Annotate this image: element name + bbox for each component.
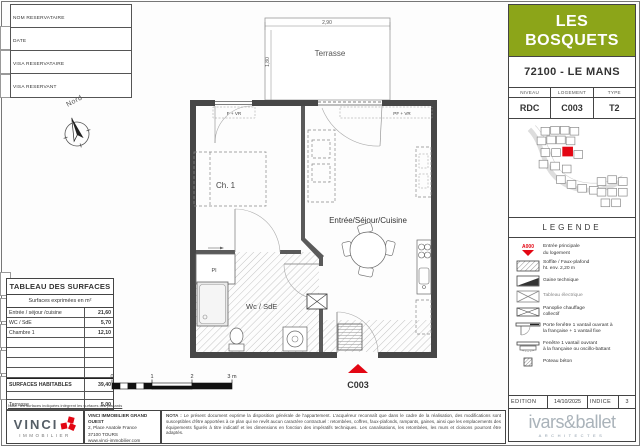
toilet — [229, 328, 244, 351]
total-label: SURFACES HABITABLES — [7, 379, 85, 391]
bedroom-label: Ch. 1 — [216, 181, 236, 190]
legend-label2: collectif — [543, 312, 559, 317]
table-row-empty — [7, 368, 113, 378]
table-row-empty — [7, 358, 113, 368]
form-field-nom: NOM RESERVATAIRE — [11, 5, 131, 28]
legend-label: Tableau électrique — [543, 293, 583, 298]
form-label: DATE — [13, 39, 26, 44]
indice-value: 3 — [619, 396, 635, 408]
kitchen-units — [416, 147, 431, 334]
indice-label: INDICE — [588, 396, 619, 408]
form-field-visa-reservant: VISA RESERVANT — [11, 74, 131, 97]
shower — [197, 282, 228, 326]
unit-info-table: NIVEAU RDC LOGEMENT C003 TYPE T2 — [509, 88, 635, 119]
form-label: NOM RESERVATAIRE — [13, 16, 65, 21]
legend-label: Soffite / Faux-plafond — [543, 260, 589, 265]
legend-item-porte-fenetre: Porte fenêtre 1 vantail ouvrant àla fran… — [513, 321, 631, 337]
bed — [194, 152, 266, 206]
legend-label: Entrée principale — [543, 244, 580, 249]
legend-label: Panoplie chauffage — [543, 306, 585, 311]
legend-label2: ht. env. 2,20 m — [543, 266, 575, 271]
publisher-website: www.vinci-immobilier.com — [88, 438, 157, 444]
title-block: LES BOSQUETS 72100 - LE MANS NIVEAU RDC … — [508, 4, 636, 442]
legend-list: A000 Entrée principaledu logement Soffit… — [509, 238, 635, 395]
project-name-line2: BOSQUETS — [509, 31, 635, 50]
surface-table-note: Nota : les surfaces indiquées intègrent … — [8, 403, 158, 408]
info-col-logement: LOGEMENT C003 — [551, 88, 593, 118]
window-left-label: F + VR — [227, 111, 242, 116]
legend-item-panoplie: Panoplie chauffagecollectif — [513, 306, 631, 318]
legend-label: Fenêtre 1 vantail ouvrant — [543, 341, 597, 346]
architect-name: ivars&ballet — [509, 413, 635, 431]
architect-logo: ivars&ballet ARCHITECTES — [509, 408, 635, 441]
legend-label: Poteau béton — [543, 359, 572, 364]
project-name-line1: LES — [509, 12, 635, 31]
french-door-icon — [513, 321, 543, 337]
scale-tick-label: 2 — [190, 374, 193, 380]
legend-label: Gaine technique — [543, 278, 579, 283]
info-col-niveau: NIVEAU RDC — [509, 88, 551, 118]
table-row-total: SURFACES HABITABLES 39,40 — [7, 378, 113, 392]
room-area: 12,10 — [85, 330, 113, 336]
edition-label: EDITION — [509, 396, 548, 408]
surface-table-subtitle: Surfaces exprimées en m² — [7, 295, 113, 308]
table-row-empty — [7, 348, 113, 358]
info-header: LOGEMENT — [551, 88, 592, 98]
wardrobe — [308, 130, 335, 202]
legend-label2: à la française ou oscillo-battant — [543, 347, 610, 352]
architect-tagline: ARCHITECTES — [509, 433, 635, 438]
site-plan-minimap — [509, 119, 635, 218]
legend-label: Porte fenêtre 1 vantail ouvrant à — [543, 323, 613, 328]
nota-body: Le présent document exprime la dispositi… — [166, 413, 501, 435]
room-label: WC / SdE — [7, 318, 85, 327]
nota-box: NOTA : Le présent document exprime la di… — [161, 410, 506, 444]
table-row: WC / SdE 5,70 — [7, 318, 113, 328]
unit-code-label: C003 — [347, 380, 369, 390]
room-label: Entrée / séjour /cuisine — [7, 308, 85, 317]
legend-label2: du logement — [543, 251, 570, 256]
edition-date: 14/10/2025 — [548, 396, 588, 408]
legend-item-gaine: Gaine technique — [513, 275, 631, 287]
bedroom-door-icon — [235, 209, 280, 252]
bathroom-label: Wc / SdE — [246, 302, 277, 311]
window-left-icon — [215, 102, 252, 144]
publisher-address: VINCI IMMOBILIER GRAND OUEST 2, Place An… — [84, 410, 161, 444]
entry-cabinet — [338, 324, 362, 350]
info-value: T2 — [594, 98, 635, 118]
terrace: 2,90 1,80 Terrasse — [265, 18, 390, 100]
terrace-depth-dim: 1,80 — [265, 57, 271, 67]
nota-title: NOTA : — [166, 413, 182, 418]
legend-item-tableau: Tableau électrique — [513, 290, 631, 303]
scale-tick-label: 3 m — [227, 374, 237, 380]
terrace-width-dim: 2,90 — [322, 20, 332, 26]
soffit-hatch-icon — [513, 260, 543, 272]
form-label: VISA RESERVANT — [13, 85, 57, 90]
legend-item-poteau: Poteau béton — [513, 357, 631, 367]
vinci-mark-icon — [61, 417, 76, 431]
dining-table — [342, 222, 396, 277]
room-label: Chambre 1 — [7, 328, 85, 337]
project-banner: LES BOSQUETS — [509, 5, 635, 57]
legend-label2: la française + 1 vantail fixe — [543, 329, 601, 334]
form-field-visa-reservataire: VISA RESERVATAIRE — [11, 51, 131, 74]
publisher-company: VINCI IMMOBILIER GRAND OUEST — [88, 413, 157, 425]
table-row-empty — [7, 338, 113, 348]
surface-table-title: TABLEAU DES SURFACES — [7, 279, 113, 295]
room-area: 5,70 — [85, 320, 113, 326]
electrical-panel-legend-icon — [513, 290, 543, 303]
legend-item-entry: A000 Entrée principaledu logement — [513, 244, 631, 256]
scale-bar: 0 1 2 3 m — [104, 370, 244, 394]
form-label: VISA RESERVATAIRE — [13, 62, 64, 67]
vinci-wordmark: VINCI — [14, 417, 59, 432]
edition-row: EDITION 14/10/2025 INDICE 3 — [509, 395, 635, 408]
washing-machine — [283, 327, 307, 351]
entry-marker-icon: A000 — [513, 245, 543, 256]
floor-plan: 2,90 1,80 Terrasse F + VR — [150, 2, 470, 402]
table-row: Entrée / séjour /cuisine 21,60 — [7, 308, 113, 318]
info-value: C003 — [551, 98, 592, 118]
electrical-panel-icon — [307, 294, 327, 309]
entrance-marker-icon — [348, 364, 368, 373]
surface-table: TABLEAU DES SURFACES Surfaces exprimées … — [6, 278, 114, 419]
window-legend-icon — [513, 340, 543, 354]
scale-tick-label: 0 — [110, 374, 113, 380]
legend-item-soffit: Soffite / Faux-plafondht. env. 2,20 m — [513, 260, 631, 272]
terrace-door-icon — [318, 102, 382, 146]
legend-title: LEGENDE — [509, 218, 635, 238]
highlighted-building — [562, 147, 573, 157]
column-icon — [513, 357, 543, 367]
table-row: Chambre 1 12,10 — [7, 328, 113, 338]
project-location: 72100 - LE MANS — [509, 57, 635, 88]
legend-item-fenetre: Fenêtre 1 vantail ouvrantà la française … — [513, 340, 631, 354]
vinci-subbrand: IMMOBILIER — [19, 433, 71, 438]
heating-manifold-icon — [513, 307, 543, 317]
info-value: RDC — [509, 98, 550, 118]
closet-label: Pl — [212, 268, 217, 274]
duct-icon — [513, 275, 543, 287]
table-row-empty — [7, 392, 113, 400]
info-col-type: TYPE T2 — [594, 88, 635, 118]
info-header: NIVEAU — [509, 88, 550, 98]
compass-icon — [54, 108, 100, 154]
window-right-tag-box — [340, 107, 432, 118]
north-arrow: Nord — [52, 98, 108, 156]
reservation-form: NOM RESERVATAIRE DATE VISA RESERVATAIRE … — [10, 4, 132, 98]
form-field-date: DATE — [11, 28, 131, 51]
vinci-logo-box: VINCI IMMOBILIER — [6, 410, 84, 444]
scale-tick-label: 1 — [150, 374, 153, 380]
terrace-room-label: Terrasse — [315, 49, 346, 58]
info-header: TYPE — [594, 88, 635, 98]
window-right-label: PF + VR — [393, 111, 411, 116]
room-area: 21,60 — [85, 310, 113, 316]
